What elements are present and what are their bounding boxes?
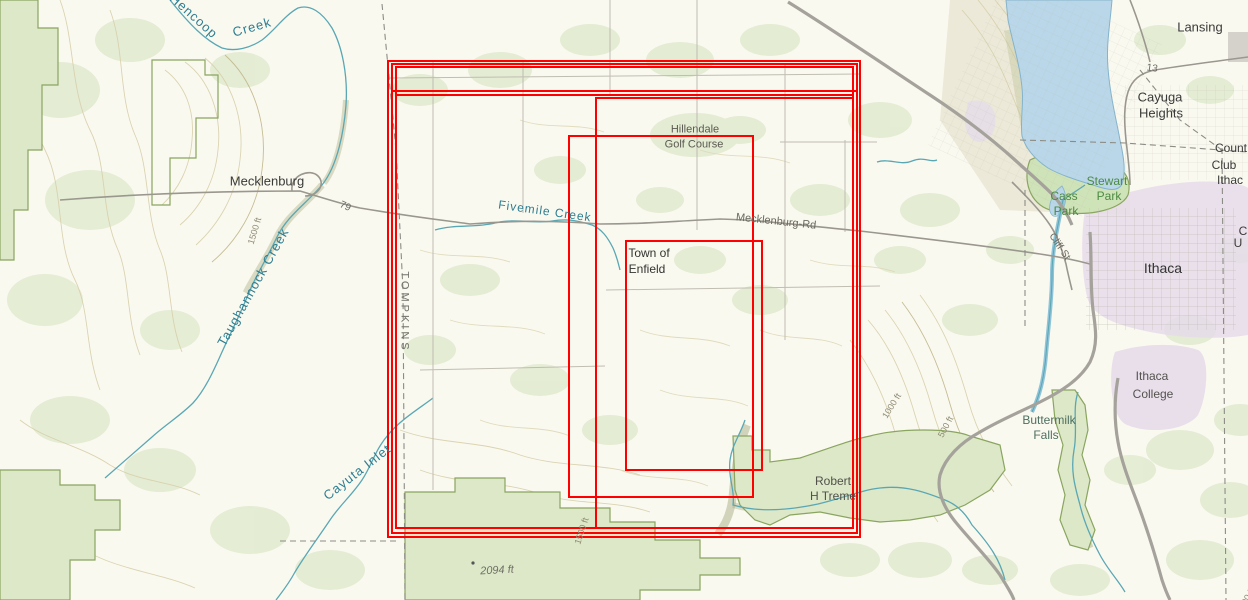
map-label-hencoop-creek-1: Hencoop xyxy=(168,0,221,41)
map-label-cass: Cass xyxy=(1050,190,1077,202)
map-label-stewart: Stewart xyxy=(1087,175,1128,187)
map-label-contour-1500-left: 1500 ft xyxy=(247,217,264,246)
map-label-heights: Heights xyxy=(1139,107,1183,120)
map-label-mecklenburg-town: Mecklenburg xyxy=(230,175,304,188)
map-label-tompkins-county: TOMPKINS xyxy=(399,271,410,352)
map-label-country-club-3: Ithac xyxy=(1217,174,1243,186)
map-label-enfield: Enfield xyxy=(629,263,666,275)
map-label-spot-2094: 2094 ft xyxy=(480,565,514,578)
map-label-falls: Falls xyxy=(1033,429,1058,441)
map-label-robert: Robert xyxy=(815,475,851,487)
map-label-route-13: 13 xyxy=(1146,63,1158,74)
map-label-ithaca-college-2: College xyxy=(1133,388,1174,400)
map-label-route-79: 79 xyxy=(338,200,352,214)
map-label-h-treme: H Treme xyxy=(810,490,856,502)
map-label-ithaca: Ithaca xyxy=(1144,261,1182,275)
map-label-cornell-u: U xyxy=(1234,237,1243,249)
map-label-stewart-park: Park xyxy=(1097,190,1122,202)
map-label-hillendale: Hillendale xyxy=(671,125,719,136)
map-label-contour-500: 500 ft xyxy=(937,415,956,439)
label-layer: HencoopCreekTaughannock CreekCayuta Inle… xyxy=(0,0,1248,600)
map-label-town-of: Town of xyxy=(628,247,669,259)
map-viewport[interactable]: HencoopCreekTaughannock CreekCayuta Inle… xyxy=(0,0,1248,600)
map-label-cass-park: Park xyxy=(1054,205,1079,217)
map-label-country-club-1: Count xyxy=(1215,142,1247,154)
map-label-mecklenburg-rd: Mecklenburg-Rd xyxy=(735,212,816,231)
map-label-hencoop-creek-2: Creek xyxy=(231,15,273,38)
map-label-cayuga: Cayuga xyxy=(1138,91,1183,104)
map-label-lansing: Lansing xyxy=(1177,21,1223,34)
map-label-fivemile-creek: Fivemile Creek xyxy=(498,199,593,224)
map-label-cliff-st: Cliff-St xyxy=(1047,232,1072,262)
map-label-contour-1000: 1000 ft xyxy=(881,392,903,420)
map-label-contour-1500-edge: 1500 ft xyxy=(1235,587,1248,600)
map-label-ithaca-college-1: Ithaca xyxy=(1136,370,1169,382)
map-label-golf-course: Golf Course xyxy=(665,140,724,151)
map-label-country-club-2: Club xyxy=(1212,159,1237,171)
map-label-cayuta-inlet: Cayuta Inlet xyxy=(321,442,393,502)
map-label-contour-1500-bottom: 1500 ft xyxy=(573,517,590,546)
map-label-buttermilk: Buttermilk xyxy=(1022,414,1075,426)
